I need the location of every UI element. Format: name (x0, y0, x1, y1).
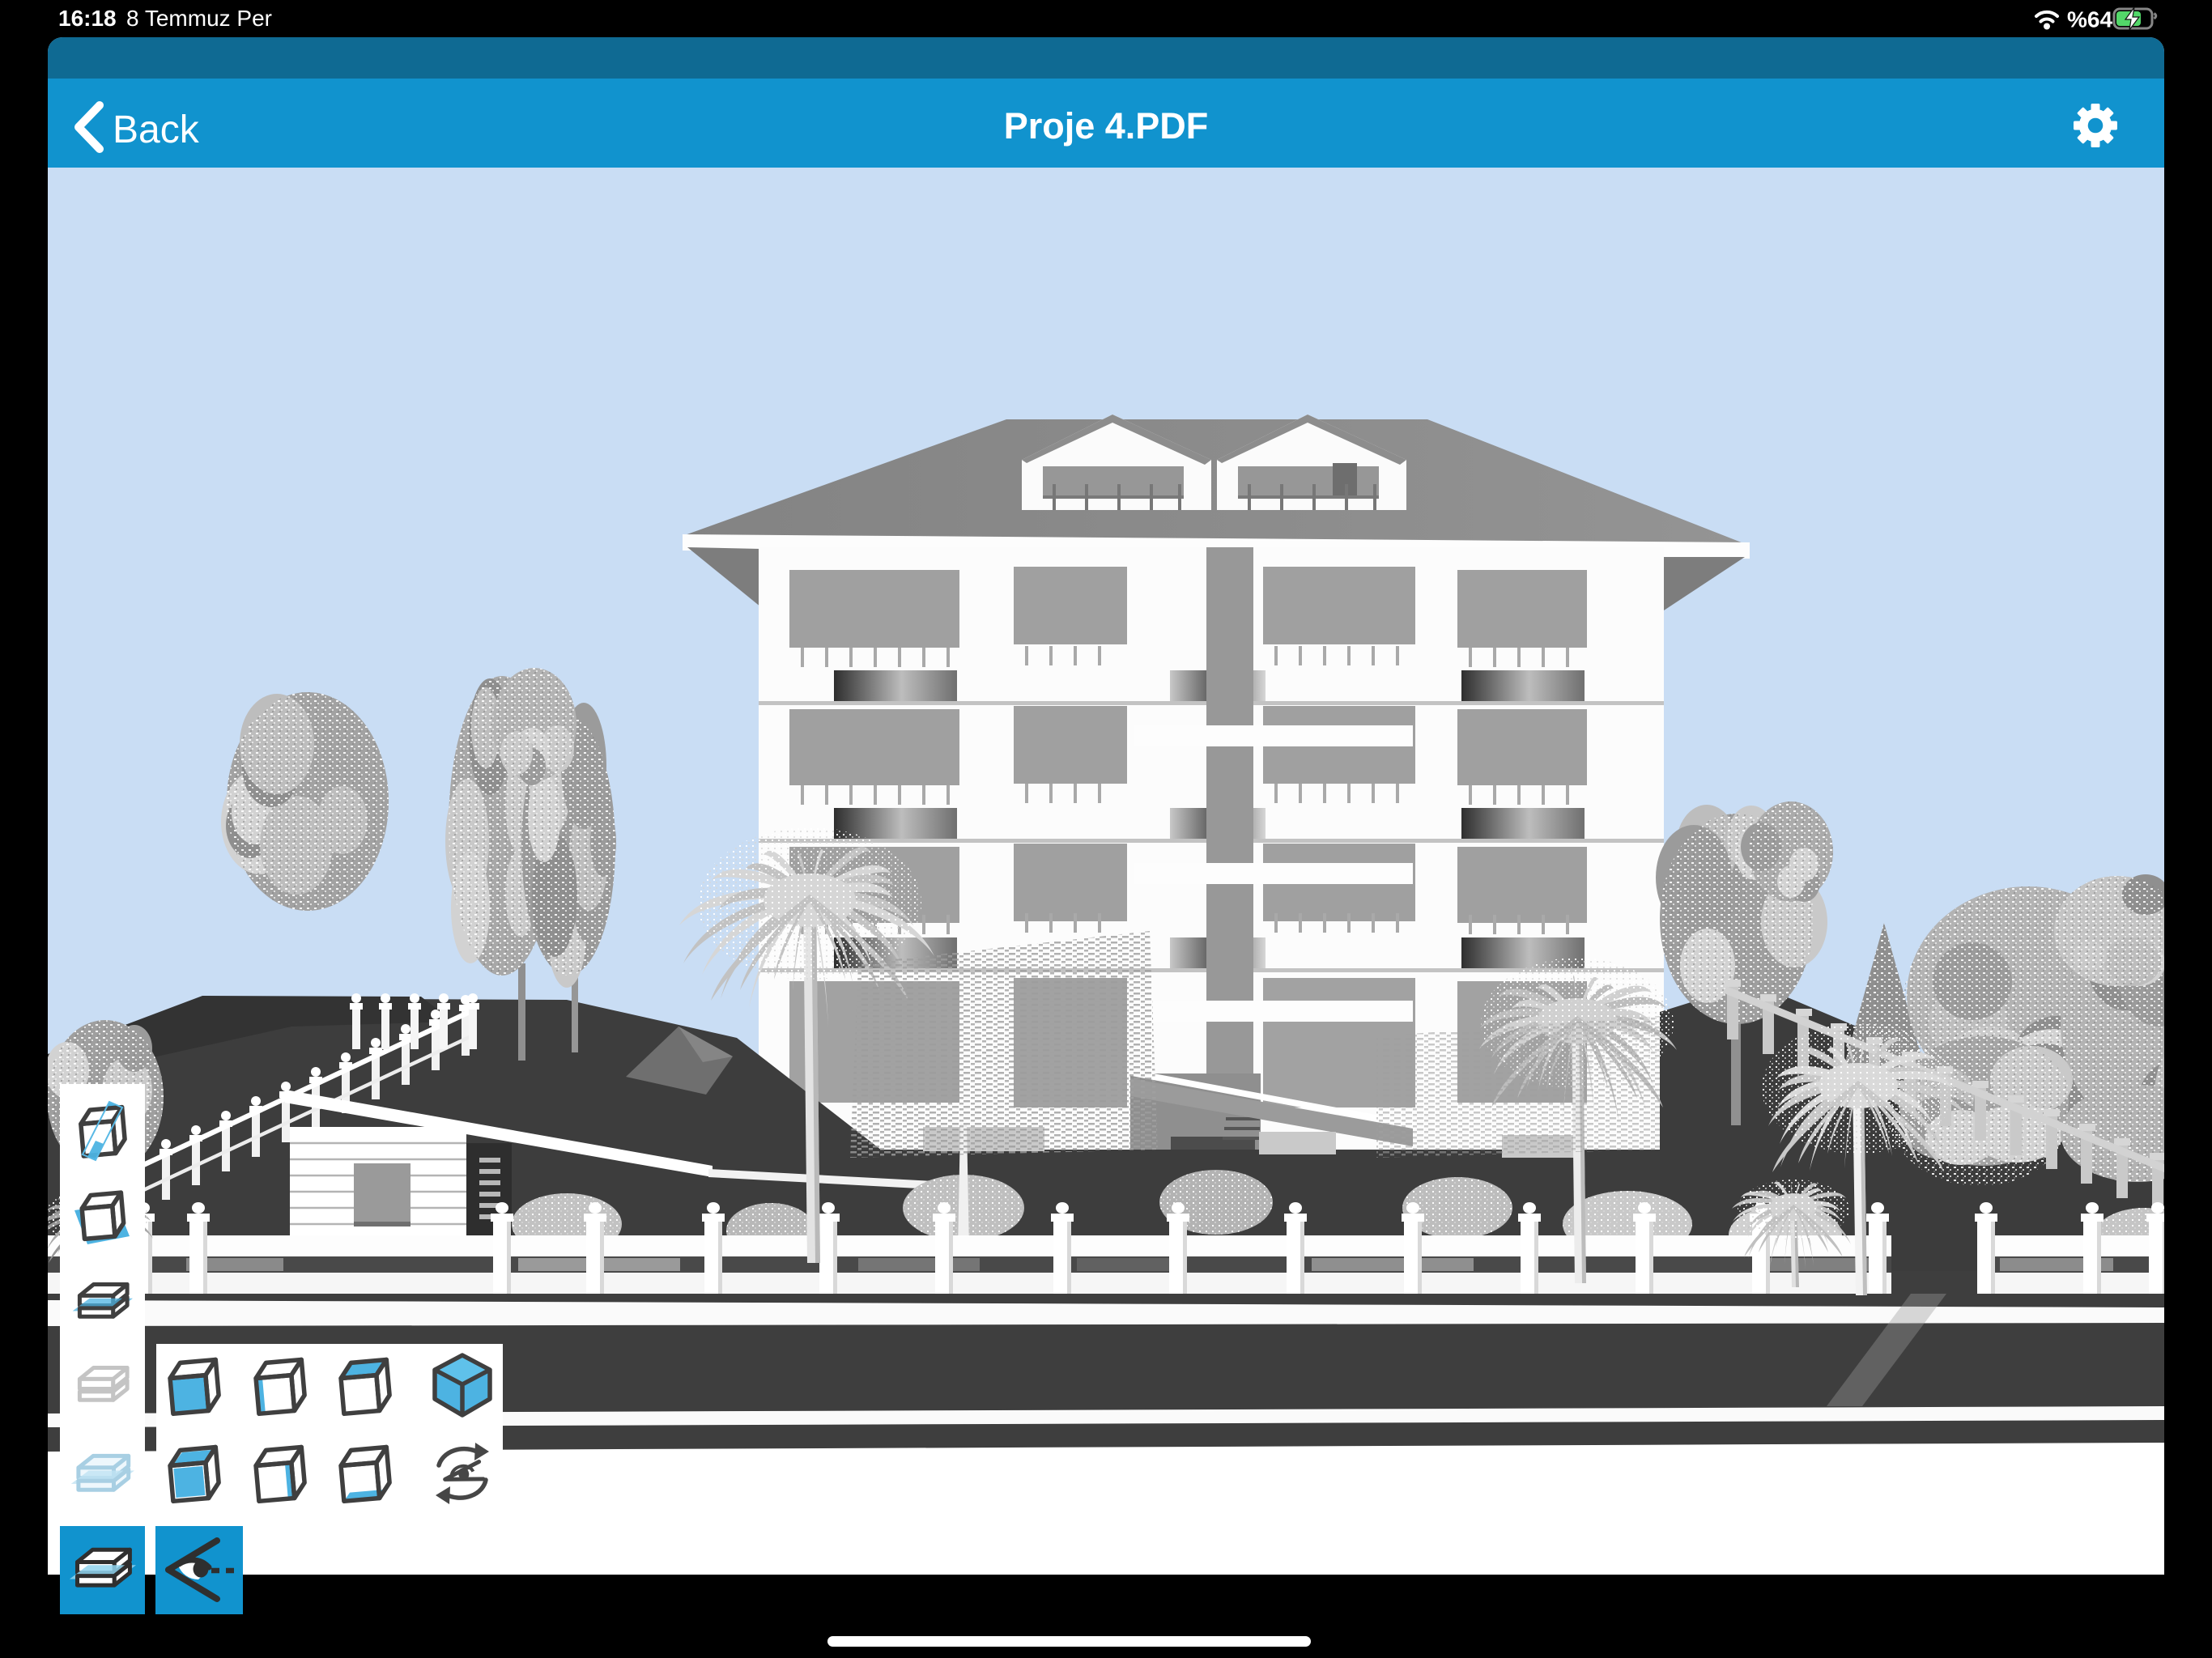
svg-text:%64: %64 (2067, 7, 2112, 32)
